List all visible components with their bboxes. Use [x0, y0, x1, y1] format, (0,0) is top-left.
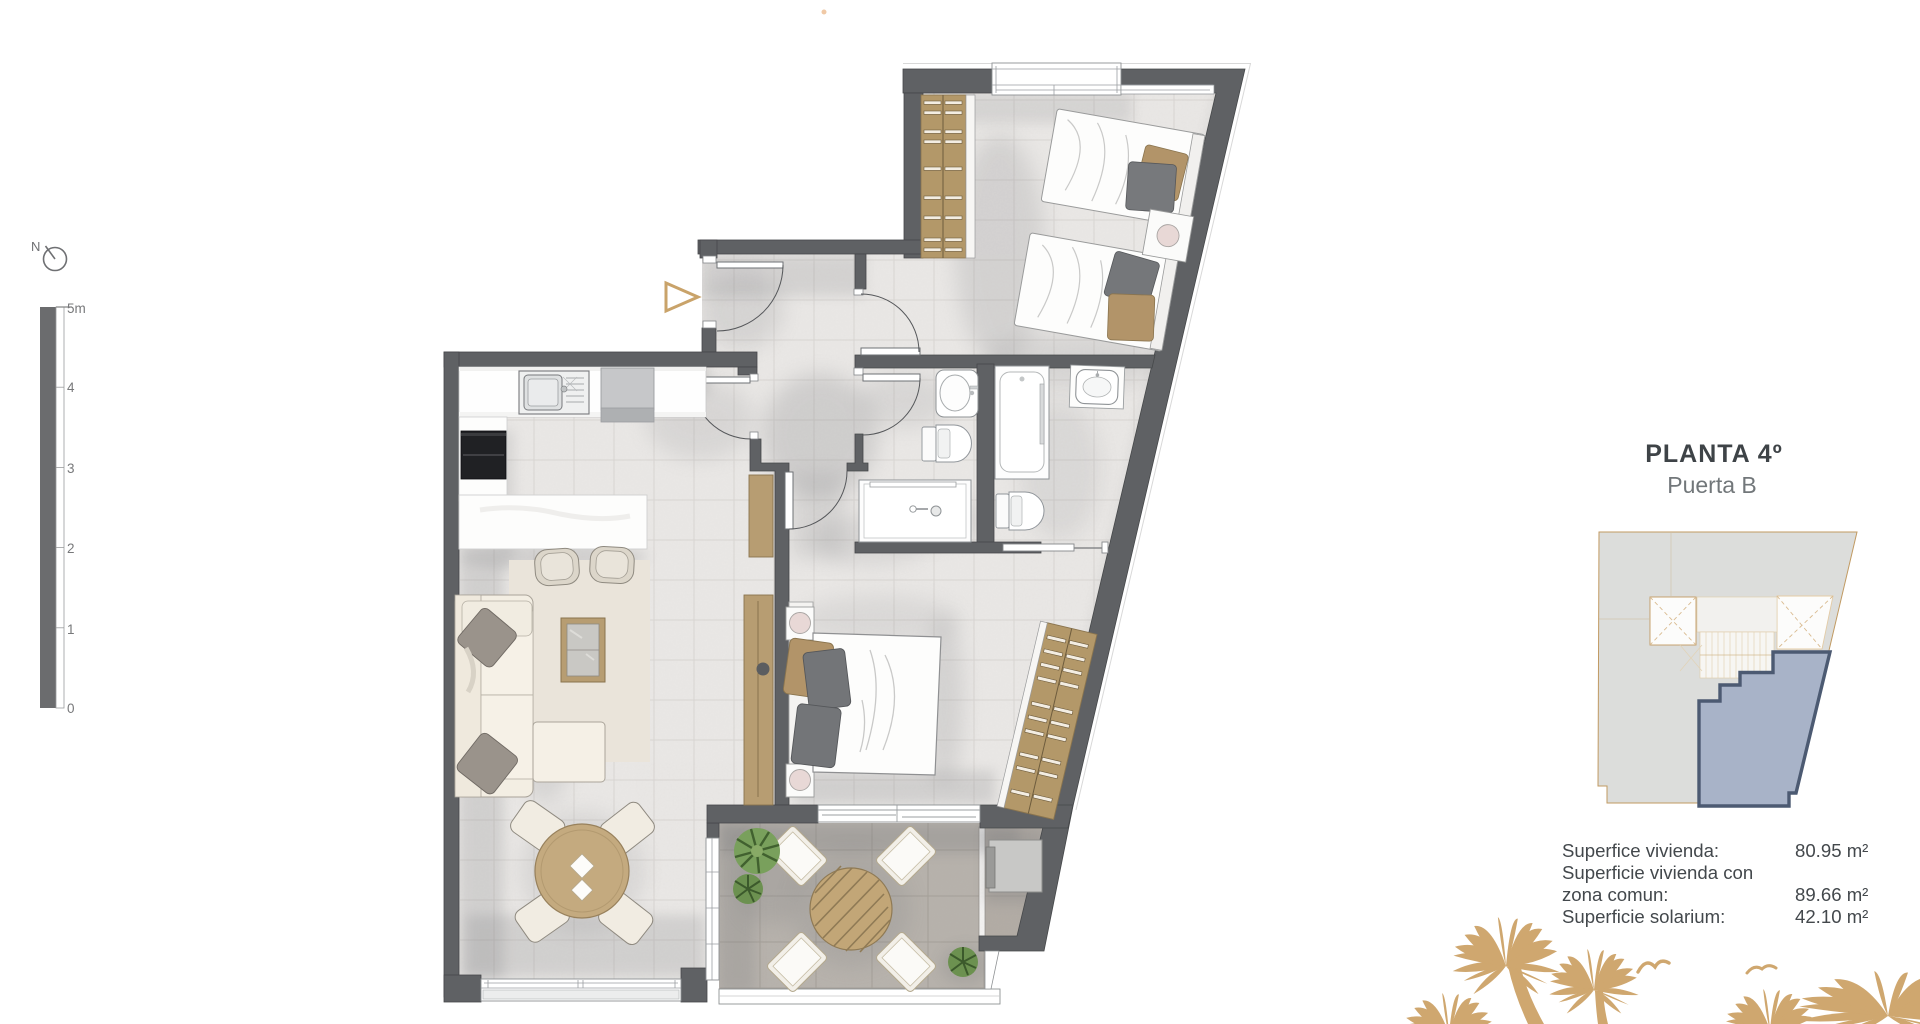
svg-text:2: 2 — [67, 541, 75, 556]
svg-text:4: 4 — [67, 380, 75, 395]
svg-text:Puerta B: Puerta B — [1667, 472, 1757, 498]
svg-text:1: 1 — [67, 622, 75, 637]
svg-text:Superfice vivienda:: Superfice vivienda: — [1562, 840, 1719, 861]
svg-text:3: 3 — [67, 461, 75, 476]
svg-text:Superficie vivienda con: Superficie vivienda con — [1562, 862, 1753, 883]
svg-text:N: N — [31, 239, 40, 254]
svg-text:zona comun:: zona comun: — [1562, 884, 1668, 905]
svg-text:42.10 m²: 42.10 m² — [1795, 906, 1868, 927]
svg-text:89.66 m²: 89.66 m² — [1795, 884, 1868, 905]
svg-text:80.95 m²: 80.95 m² — [1795, 840, 1868, 861]
svg-text:5m: 5m — [67, 301, 86, 316]
svg-text:Superficie solarium:: Superficie solarium: — [1562, 906, 1725, 927]
svg-text:PLANTA 4º: PLANTA 4º — [1645, 440, 1783, 468]
svg-text:0: 0 — [67, 701, 75, 716]
